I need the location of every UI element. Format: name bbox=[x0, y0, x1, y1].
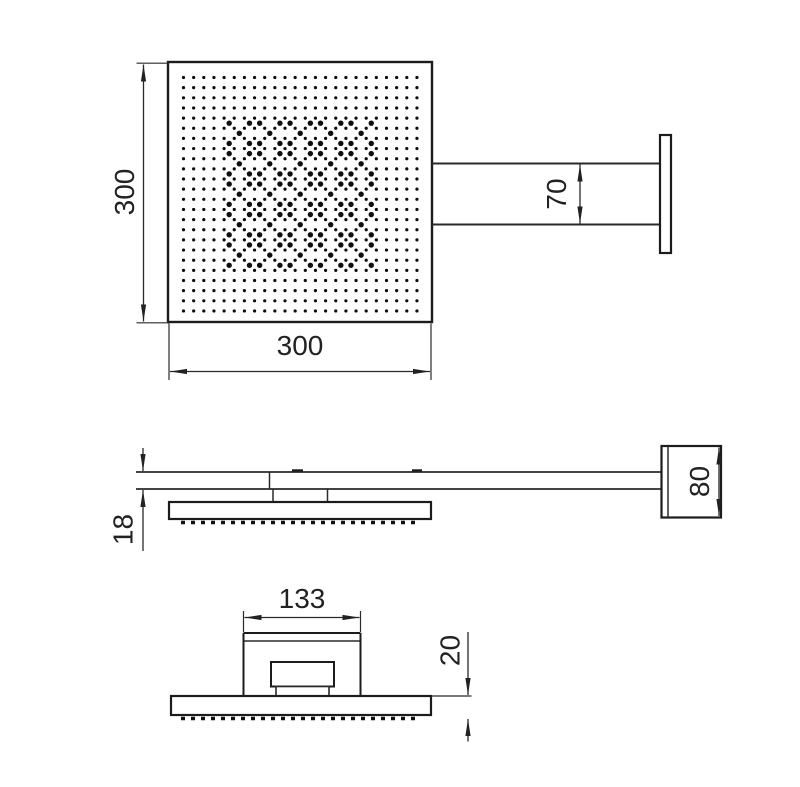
shower-head-side bbox=[169, 502, 431, 519]
shower-head-front bbox=[171, 696, 431, 715]
swivel-connector-side bbox=[273, 489, 328, 502]
technical-drawing-page: 70 300 300 bbox=[0, 0, 800, 787]
shower-arm-side bbox=[136, 470, 662, 489]
side-view: 18 80 bbox=[107, 446, 721, 551]
dim-head-width: 300 bbox=[169, 324, 431, 381]
dim-label-head-height: 300 bbox=[109, 169, 140, 216]
dim-label-arm-thickness: 18 bbox=[107, 514, 138, 545]
front-view: 133 20 bbox=[171, 583, 472, 742]
connector-front bbox=[271, 662, 334, 696]
dim-head-edge-height: 20 bbox=[432, 632, 472, 742]
dim-mount-bracket-width: 133 bbox=[244, 583, 361, 632]
dim-label-wall-bracket-height: 80 bbox=[684, 466, 715, 497]
dim-arm-width: 70 bbox=[541, 165, 580, 224]
wall-flange-plan bbox=[660, 135, 671, 253]
dim-arm-thickness: 18 bbox=[107, 448, 143, 551]
dim-label-arm-width: 70 bbox=[541, 178, 572, 209]
dim-label-mount-bracket-width: 133 bbox=[279, 583, 326, 614]
technical-drawing-canvas: 70 300 300 bbox=[0, 0, 800, 787]
dim-head-height: 300 bbox=[109, 63, 169, 323]
top-view: 70 300 300 bbox=[109, 62, 671, 380]
dim-label-head-width: 300 bbox=[277, 330, 324, 361]
dim-label-head-edge-height: 20 bbox=[434, 635, 465, 666]
